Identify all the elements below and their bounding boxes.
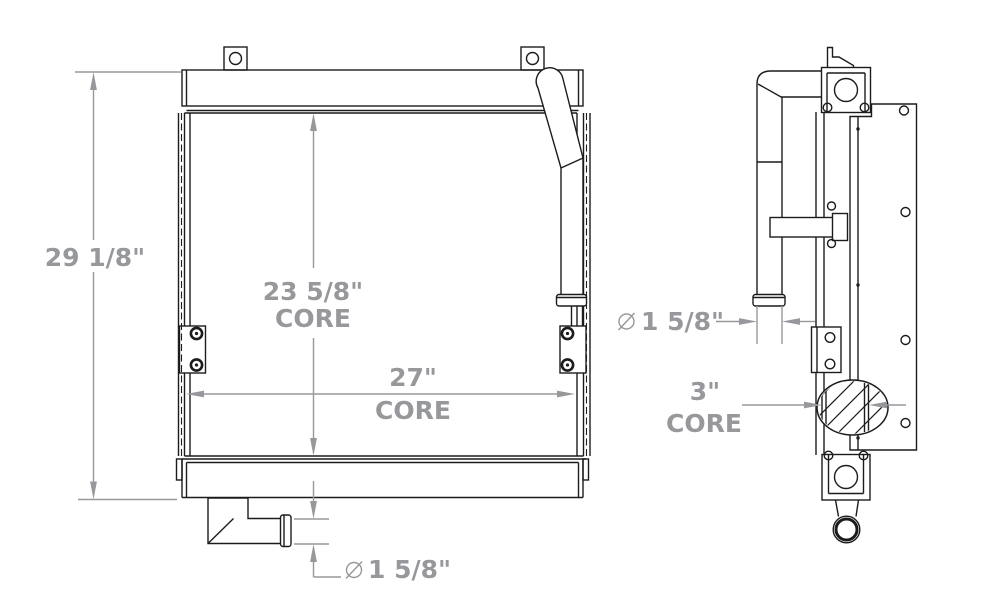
dim-overall-height: 29 1/8" bbox=[45, 72, 181, 500]
arrow-left-icon bbox=[782, 318, 800, 325]
outlet-rim bbox=[836, 519, 857, 540]
bottom-pipe-bracket bbox=[822, 451, 870, 500]
tank-tab-right bbox=[583, 459, 589, 480]
bolt-hole-icon bbox=[828, 240, 836, 248]
tank-tab-left bbox=[177, 459, 183, 480]
bolt-center bbox=[566, 363, 569, 366]
dim-core-depth-label: CORE bbox=[666, 409, 742, 438]
arrow-down-icon bbox=[310, 438, 317, 456]
oil-cooler-drawing: 29 1/8" 23 5/8" CORE 27" CORE bbox=[0, 0, 982, 594]
dim-core-width-label: CORE bbox=[375, 396, 451, 425]
dim-pipe-diameter-value: 1 5/8" bbox=[641, 307, 724, 336]
side-mounting-bracket-right bbox=[560, 326, 586, 373]
outlet-elbow bbox=[208, 498, 291, 547]
top-mounting-bracket-right bbox=[521, 47, 544, 70]
top-pipe-bracket bbox=[822, 48, 871, 113]
dim-overall-height-value: 29 1/8" bbox=[45, 243, 145, 272]
tie-bar-clip bbox=[833, 214, 848, 241]
rivet-dot bbox=[856, 127, 859, 130]
rivet-dot bbox=[856, 283, 859, 286]
arrow-up-icon bbox=[310, 544, 317, 562]
top-mounting-bracket-left bbox=[224, 47, 247, 70]
front-view bbox=[177, 47, 591, 547]
bolt-hole-icon bbox=[230, 53, 242, 65]
dim-core-depth-value: 3" bbox=[690, 377, 720, 406]
outlet-pipe-side bbox=[833, 500, 860, 543]
inlet-pipe-side bbox=[753, 71, 822, 306]
mid-bracket bbox=[812, 327, 842, 373]
arrow-up-icon bbox=[90, 72, 97, 90]
diameter-symbol-icon bbox=[619, 313, 635, 330]
top-tank bbox=[182, 70, 583, 113]
dim-core-height-label: CORE bbox=[275, 304, 351, 333]
bolt-center bbox=[566, 332, 569, 335]
arrow-right-icon bbox=[557, 391, 575, 398]
dim-core-height-value: 23 5/8" bbox=[263, 277, 363, 306]
dim-core-width-value: 27" bbox=[389, 363, 437, 392]
arrow-left-icon bbox=[186, 391, 204, 398]
technical-drawing-page: 29 1/8" 23 5/8" CORE 27" CORE bbox=[0, 0, 982, 594]
hose-bead bbox=[557, 295, 587, 307]
hose-bead bbox=[753, 295, 785, 307]
diameter-symbol-icon bbox=[346, 562, 362, 579]
arrow-right-icon bbox=[739, 318, 757, 325]
arrow-down-icon bbox=[90, 482, 97, 500]
dim-outlet-diameter: 1 5/8" bbox=[294, 481, 451, 584]
dim-outlet-diameter-value: 1 5/8" bbox=[368, 555, 451, 584]
bolt-center bbox=[195, 363, 198, 366]
arrow-up-icon bbox=[310, 113, 317, 131]
arrow-down-icon bbox=[310, 501, 317, 519]
side-view bbox=[753, 48, 917, 543]
hose-bead bbox=[281, 515, 292, 547]
dim-core-height: 23 5/8" CORE bbox=[263, 113, 363, 456]
bottom-tank bbox=[177, 459, 589, 498]
bolt-hole-icon bbox=[828, 202, 836, 210]
dim-core-width: 27" CORE bbox=[186, 363, 575, 425]
dim-pipe-diameter: 1 5/8" bbox=[619, 306, 816, 344]
bolt-center bbox=[195, 332, 198, 335]
rivet-dot bbox=[856, 436, 859, 439]
bolt-hole-icon bbox=[527, 53, 539, 65]
side-mounting-bracket-left bbox=[180, 326, 206, 373]
